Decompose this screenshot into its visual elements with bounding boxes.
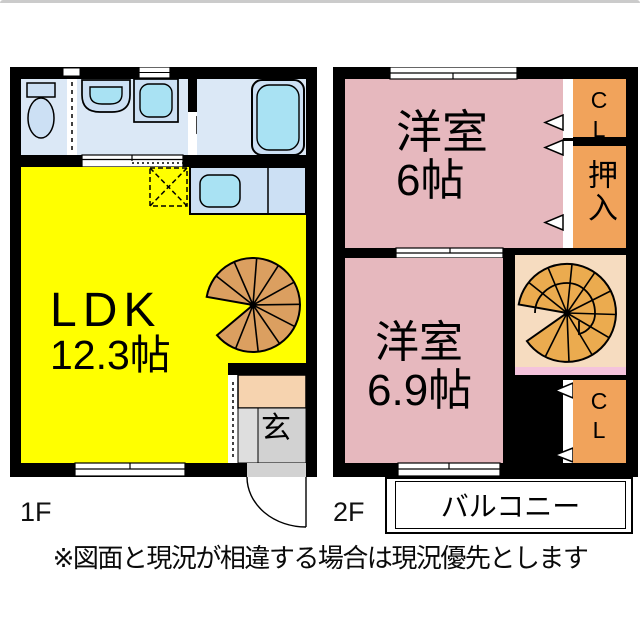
sliding-door-icon [82, 155, 183, 167]
disclaimer-text: ※図面と現況が相違する場合は現況優先とします [0, 538, 640, 575]
floor-plan-1f: LDK 12.3帖 玄 [10, 67, 317, 477]
kitchen-counter [190, 167, 306, 214]
washing-machine-icon [134, 79, 178, 122]
bathtub-icon [252, 80, 304, 155]
ldk-room-label: LDK [50, 287, 161, 335]
entrance-door-arc [235, 477, 320, 539]
kitchen-sink-icon [200, 175, 240, 207]
window-icon [398, 463, 500, 476]
toilet-icon [27, 83, 55, 138]
room-bottom-label: 洋室 [375, 321, 463, 365]
entrance-step [238, 375, 306, 408]
entrance-label: 玄 [261, 414, 291, 444]
window-icon [139, 67, 170, 78]
window-icon [390, 67, 517, 79]
stair-opening-band [515, 367, 626, 375]
balcony: バルコニー [385, 477, 633, 534]
floor-label-1f: 1F [20, 497, 52, 528]
room-top-size: 6帖 [396, 159, 464, 203]
washroom-door [188, 112, 197, 155]
photo-edge [0, 0, 640, 3]
balcony-floor: バルコニー [395, 481, 626, 529]
vanity-sink-icon [82, 80, 130, 112]
floor-plan-page: LDK 12.3帖 玄 [0, 0, 640, 640]
ldk-room-size: 12.3帖 [50, 335, 171, 376]
closet-cl-bottom-label: CL [587, 388, 610, 446]
sliding-door-icon [396, 248, 503, 258]
room-bottom-size: 6.9帖 [367, 369, 472, 413]
balcony-label: バルコニー [441, 485, 580, 525]
closet-cl-top-label: CL [587, 87, 610, 145]
toilet-door [67, 79, 77, 155]
window-icon [63, 68, 80, 76]
window-icon [75, 463, 185, 476]
floor-label-2f: 2F [333, 497, 365, 528]
oshiire-label: 押入 [584, 159, 614, 225]
room-top-label: 洋室 [396, 109, 488, 155]
floor-plan-2f: 洋室 6帖 洋室 6.9帖 CL 押入 CL [333, 67, 638, 477]
